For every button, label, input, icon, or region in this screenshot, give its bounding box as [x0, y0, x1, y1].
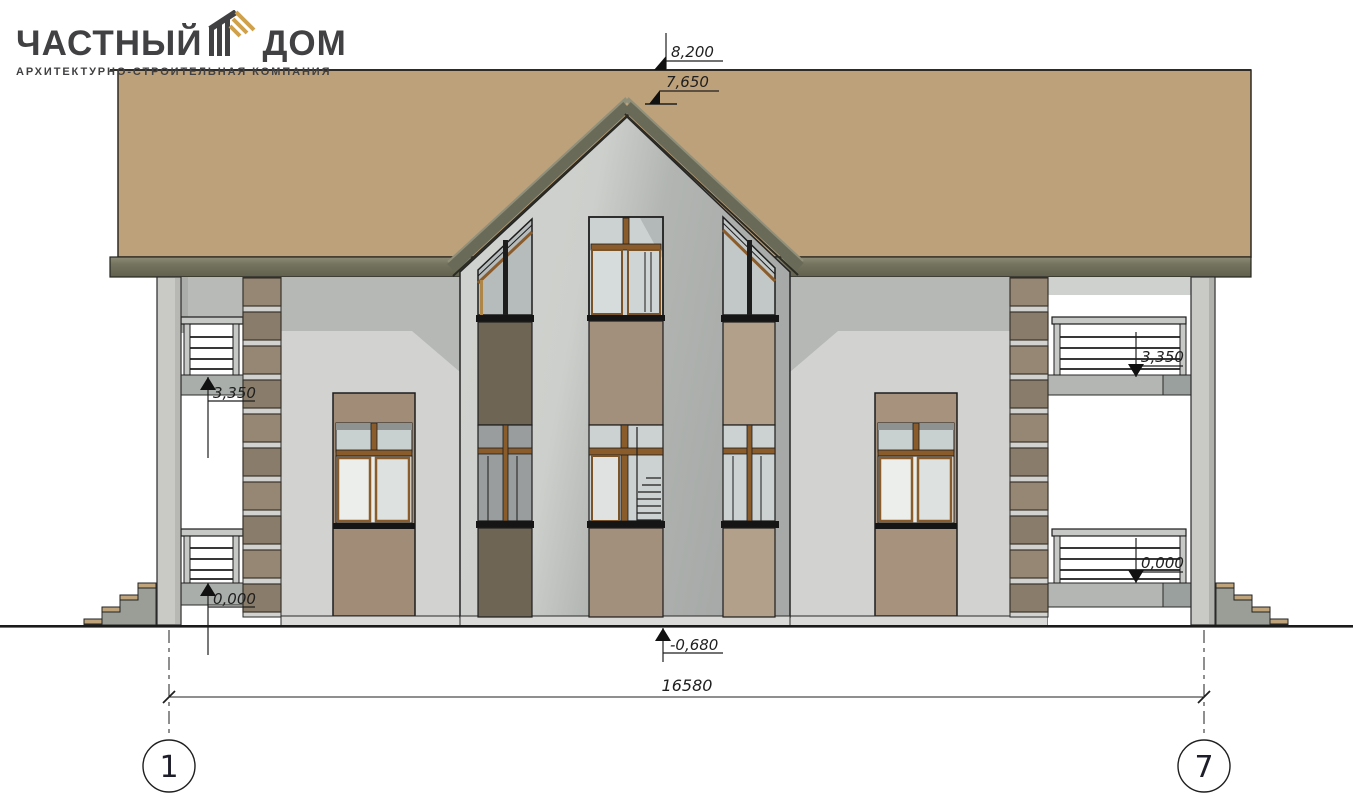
- floor2-right-label: 3,350: [1141, 348, 1184, 366]
- loggia-soffit-shadow: [1048, 277, 1191, 295]
- sill: [587, 315, 665, 321]
- axis-left-label: 1: [159, 750, 178, 785]
- right-loggia: [1048, 277, 1191, 625]
- glazed-strip-left: [476, 219, 534, 617]
- glazed-strip-right: [721, 217, 779, 617]
- right-stairs: [1216, 583, 1288, 625]
- transom-mullion: [371, 423, 377, 452]
- left-column-shade: [175, 278, 180, 624]
- spandrel-lower: [589, 528, 663, 617]
- elevation-mark-ridge: 8,200: [654, 33, 723, 70]
- glazed-strip-center: [587, 217, 665, 617]
- logo-word-left: ЧАСТНЫЙ: [16, 26, 202, 61]
- spandrel-lower: [478, 528, 532, 617]
- left-wing-window-unit: [333, 393, 415, 616]
- window-sill: [875, 523, 957, 529]
- spandrel-upper: [723, 322, 775, 425]
- slab-end-cap: [1163, 375, 1191, 395]
- right-wing: [790, 277, 1048, 617]
- loggia-soffit-shadow: [181, 277, 243, 319]
- window-rail: [336, 450, 412, 456]
- floor0-left-label: 0,000: [213, 590, 256, 608]
- window-sill: [333, 523, 415, 529]
- axis-right: 7: [1178, 630, 1230, 792]
- logo-word-right: ДОМ: [262, 26, 346, 61]
- elevation-drawing: 8,200 7,650 3,350 0,000: [0, 0, 1353, 803]
- floor0-right-label: 0,000: [1141, 554, 1184, 572]
- terrain-level-label: -0,680: [670, 636, 718, 654]
- right-column-shade: [1209, 278, 1214, 624]
- left-stairs: [84, 583, 156, 625]
- sill: [587, 521, 665, 528]
- company-logo: ЧАСТНЫЙ ДОМ АРХИТЕКТУРНО-СТРОИТЕЛЬНАЯ КО…: [16, 10, 347, 78]
- sill: [721, 521, 779, 528]
- elevation-mark-terrain: -0,680: [655, 628, 723, 662]
- logo-house-icon: [208, 10, 256, 61]
- logo-subtitle: АРХИТЕКТУРНО-СТРОИТЕЛЬНАЯ КОМПАНИЯ: [16, 66, 347, 78]
- window-pane-right: [918, 458, 951, 521]
- right-quoins: [1010, 277, 1048, 617]
- overall-dimension: 16580: [163, 676, 1210, 703]
- window-rail: [878, 450, 954, 456]
- ridge-level-label: 8,200: [671, 43, 714, 61]
- sill: [721, 315, 779, 322]
- window-pane-left: [880, 458, 912, 521]
- axis-left: 1: [143, 630, 195, 792]
- loggia-recess: [1048, 277, 1191, 625]
- right-wing-window-unit: [875, 393, 957, 616]
- ground-line: [0, 625, 1353, 628]
- left-wing: [281, 277, 460, 617]
- sill: [476, 315, 534, 322]
- sill: [476, 521, 534, 528]
- spandrel-upper: [478, 322, 532, 425]
- window-pane-right: [376, 458, 409, 521]
- spandrel-upper: [589, 321, 663, 425]
- slab-end-cap: [1163, 583, 1191, 607]
- floor2-left-label: 3,350: [213, 384, 256, 402]
- transom-mullion: [913, 423, 919, 452]
- axis-right-label: 7: [1194, 750, 1213, 785]
- elevation-sheet: ЧАСТНЫЙ ДОМ АРХИТЕКТУРНО-СТРОИТЕЛЬНАЯ КО…: [0, 0, 1353, 803]
- overall-width-label: 16580: [662, 676, 713, 695]
- window-pane-left: [338, 458, 370, 521]
- spandrel-lower: [723, 528, 775, 617]
- gable-peak-label: 7,650: [666, 73, 709, 91]
- left-loggia: [178, 277, 243, 625]
- left-quoins: [243, 277, 281, 617]
